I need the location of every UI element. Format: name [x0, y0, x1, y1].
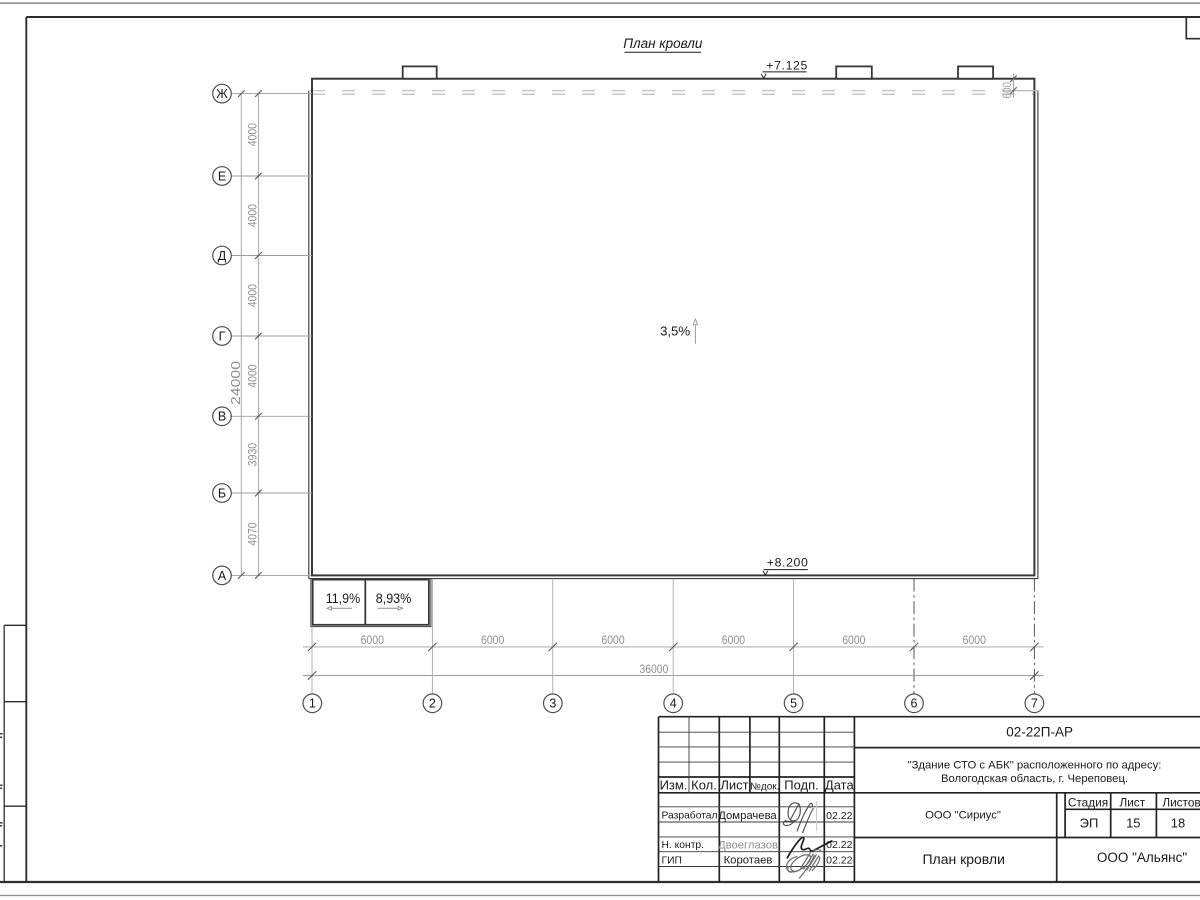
svg-text:Лист: Лист [1119, 796, 1145, 810]
svg-text:+7.125: +7.125 [766, 58, 807, 72]
svg-text:План кровли: План кровли [922, 851, 1004, 867]
svg-text:Б: Б [218, 486, 226, 500]
svg-text:6000: 6000 [842, 633, 865, 647]
svg-text:Е: Е [218, 169, 226, 183]
svg-text:ЭП: ЭП [1080, 816, 1099, 831]
svg-text:4000: 4000 [246, 204, 260, 227]
svg-text:В: В [218, 410, 226, 424]
svg-text:3,5%: 3,5% [660, 324, 690, 339]
svg-text:6: 6 [911, 697, 918, 711]
svg-text:4000: 4000 [246, 284, 260, 307]
svg-text:02-22П-АР: 02-22П-АР [1006, 725, 1073, 740]
svg-text:+8.200: +8.200 [767, 556, 808, 570]
svg-text:Д: Д [218, 249, 227, 263]
svg-text:Листов: Листов [1162, 796, 1200, 810]
svg-text:Ж: Ж [216, 87, 228, 101]
svg-text:18: 18 [1171, 816, 1185, 831]
svg-text:15: 15 [1126, 816, 1140, 831]
svg-text:Коротаев: Коротаев [724, 855, 773, 867]
svg-text:Г: Г [219, 329, 226, 343]
svg-text:5: 5 [790, 697, 797, 711]
svg-text:4: 4 [670, 697, 677, 711]
svg-text:ООО "Сириус": ООО "Сириус" [925, 810, 1001, 822]
svg-text:№док.: №док. [750, 781, 779, 792]
svg-text:24000: 24000 [228, 361, 243, 405]
svg-text:ГИП: ГИП [662, 855, 682, 866]
svg-text:1: 1 [309, 697, 316, 711]
svg-text:Изм.: Изм. [660, 778, 688, 793]
svg-text:ООО "Альянс": ООО "Альянс" [1097, 850, 1187, 865]
svg-text:4000: 4000 [246, 364, 260, 387]
svg-text:6000: 6000 [361, 633, 384, 647]
svg-text:02.22: 02.22 [826, 810, 852, 822]
svg-text:36000: 36000 [639, 662, 668, 676]
svg-text:4000: 4000 [246, 123, 260, 146]
svg-text:8,93%: 8,93% [376, 591, 412, 606]
svg-text:План кровли: План кровли [623, 36, 703, 51]
svg-text:3930: 3930 [246, 443, 260, 466]
svg-text:Подп.: Подп. [784, 778, 819, 793]
svg-text:6000: 6000 [481, 633, 504, 647]
svg-text:Кол.: Кол. [691, 778, 717, 793]
svg-text:Домрачева: Домрачева [718, 810, 777, 822]
svg-text:6000: 6000 [601, 633, 624, 647]
svg-text:А: А [218, 569, 227, 583]
svg-text:Стадия: Стадия [1068, 796, 1108, 810]
svg-text:"Здание СТО с АБК" расположенн: "Здание СТО с АБК" расположенного по адр… [908, 759, 1162, 771]
svg-text:02.22: 02.22 [826, 854, 852, 866]
svg-text:Дата: Дата [825, 778, 855, 793]
svg-text:7: 7 [1031, 697, 1038, 711]
svg-text:Двоеглазов: Двоеглазов [718, 839, 778, 851]
svg-text:6000: 6000 [963, 633, 986, 647]
svg-text:11,9%: 11,9% [326, 591, 361, 606]
svg-text:3: 3 [549, 697, 556, 711]
svg-text:2: 2 [429, 697, 436, 711]
svg-text:600: 600 [1002, 82, 1014, 99]
svg-text:Разработал: Разработал [662, 810, 718, 822]
svg-text:Вологодская область, г. Черепо: Вологодская область, г. Череповец. [941, 773, 1128, 785]
svg-text:Лист: Лист [720, 778, 748, 793]
svg-text:6000: 6000 [722, 633, 745, 647]
svg-text:Н. контр.: Н. контр. [662, 840, 705, 851]
svg-text:4070: 4070 [246, 522, 260, 545]
